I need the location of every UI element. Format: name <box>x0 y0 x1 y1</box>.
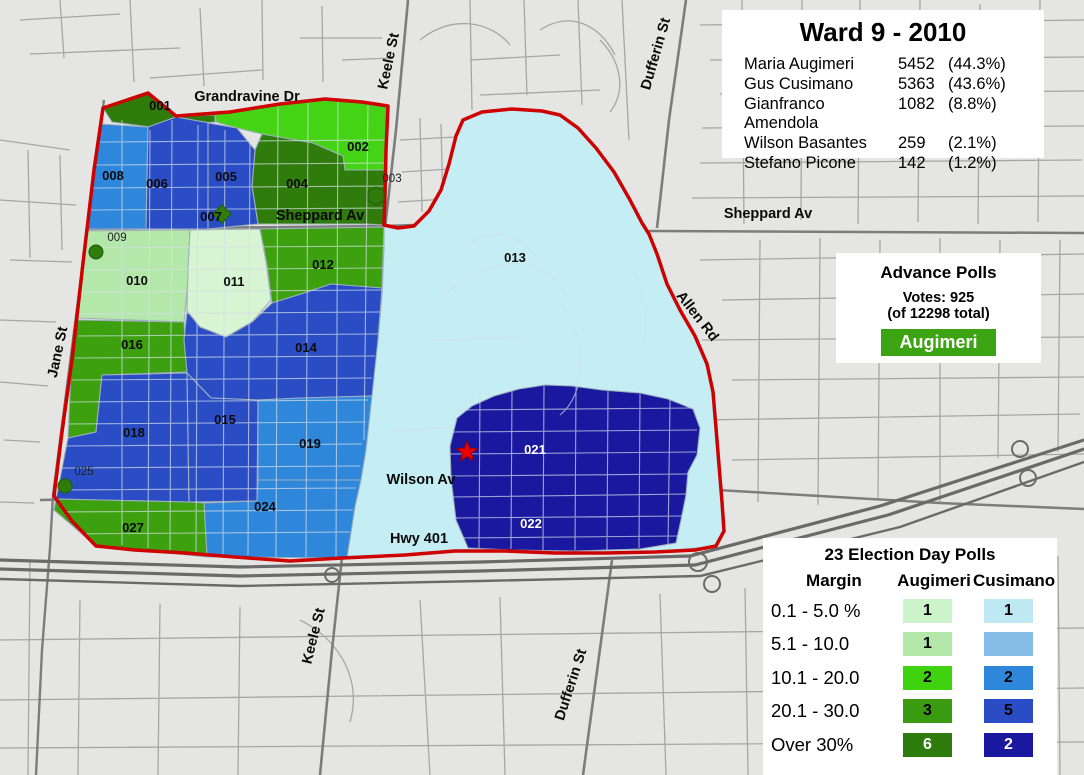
poll-label-018: 018 <box>123 425 145 440</box>
advance-polls-votes: Votes: 925 <box>836 290 1041 306</box>
poll-label-012: 012 <box>312 257 334 272</box>
legend-margin-label: Over 30% <box>771 734 903 756</box>
legend-cusimano-header: Cusimano <box>971 571 1057 591</box>
poll-label-010: 010 <box>126 273 148 288</box>
legend-swatch-cusimano: 2 <box>984 733 1033 757</box>
poll-label-027: 027 <box>122 520 144 535</box>
advance-polls-title: Advance Polls <box>836 263 1041 283</box>
results-panel-title: Ward 9 - 2010 <box>722 10 1044 48</box>
legend-margin-label: 20.1 - 30.0 <box>771 700 903 722</box>
legend-row: 5.1 - 10.0 1 <box>763 628 1057 662</box>
advance-winner-badge: Augimeri <box>881 329 995 356</box>
candidate-pct: (44.3%) <box>948 55 1036 75</box>
legend-margin-label: 10.1 - 20.0 <box>771 667 903 689</box>
poll-label-004: 004 <box>286 176 308 191</box>
poll-label-021: 021 <box>524 442 546 457</box>
candidate-pct: (8.8%) <box>948 95 1036 135</box>
poll-dot-025 <box>58 479 72 493</box>
poll-label-001: 001 <box>149 98 171 113</box>
results-panel: Ward 9 - 2010 Maria Augimeri 5452 (44.3%… <box>722 10 1044 158</box>
candidate-pct: (43.6%) <box>948 75 1036 95</box>
candidate-name: Stefano Picone <box>744 154 898 174</box>
legend-swatch-augimeri: 1 <box>903 632 952 656</box>
poll-label-006: 006 <box>146 176 168 191</box>
poll-label-008: 008 <box>102 168 124 183</box>
candidate-pct: (1.2%) <box>948 154 1036 174</box>
legend-rows: 0.1 - 5.0 % 1 1 5.1 - 10.0 1 10.1 - 20.0… <box>763 594 1057 762</box>
poll-label-003: 003 <box>382 173 401 185</box>
sheppard-av-label-east: Sheppard Av <box>724 206 812 222</box>
legend-margin-label: 0.1 - 5.0 % <box>771 600 903 622</box>
legend-swatch-augimeri: 3 <box>903 699 952 723</box>
legend-row: Over 30% 6 2 <box>763 728 1057 762</box>
poll-label-022: 022 <box>520 516 542 531</box>
hwy-401-label: Hwy 401 <box>390 531 448 547</box>
legend-swatch-cusimano: 5 <box>984 699 1033 723</box>
candidate-name: Wilson Basantes <box>744 134 898 154</box>
poll-label-015: 015 <box>214 412 236 427</box>
poll-label-014: 014 <box>295 340 317 355</box>
legend-augimeri-header: Augimeri <box>897 571 971 591</box>
poll-label-019: 019 <box>299 436 321 451</box>
poll-label-013: 013 <box>504 250 526 265</box>
poll-label-007: 007 <box>200 209 222 224</box>
poll-dot-009 <box>89 245 103 259</box>
legend-swatch-cusimano: 2 <box>984 666 1033 690</box>
legend-row: 10.1 - 20.0 2 2 <box>763 661 1057 695</box>
candidate-votes: 5452 <box>898 55 948 75</box>
sheppard-av-label-west: Sheppard Av <box>276 208 364 224</box>
candidate-name: Maria Augimeri <box>744 55 898 75</box>
candidate-votes: 5363 <box>898 75 948 95</box>
legend-swatch-cusimano: 1 <box>984 599 1033 623</box>
legend-swatch-cusimano <box>984 632 1033 656</box>
candidate-results-list: Maria Augimeri 5452 (44.3%) Gus Cusimano… <box>722 48 1044 174</box>
legend-header-row: Margin Augimeri Cusimano <box>763 571 1057 591</box>
advance-polls-panel: Advance Polls Votes: 925 (of 12298 total… <box>836 253 1041 363</box>
poll-label-024: 024 <box>254 499 276 514</box>
candidate-row: Maria Augimeri 5452 (44.3%) <box>744 55 1036 75</box>
candidate-votes: 259 <box>898 134 948 154</box>
legend-swatch-augimeri: 1 <box>903 599 952 623</box>
legend-row: 0.1 - 5.0 % 1 1 <box>763 594 1057 628</box>
candidate-row: Wilson Basantes 259 (2.1%) <box>744 134 1036 154</box>
candidate-name: Gianfranco Amendola <box>744 95 898 135</box>
advance-polls-total: (of 12298 total) <box>836 306 1041 322</box>
poll-dot-003 <box>368 187 384 205</box>
candidate-row: Stefano Picone 142 (1.2%) <box>744 154 1036 174</box>
grandravine-dr-label: Grandravine Dr <box>194 89 300 105</box>
poll-label-002: 002 <box>347 139 369 154</box>
ward9-election-map-page: Grandravine Dr Keele St Keele St Dufferi… <box>0 0 1084 775</box>
poll-label-009: 009 <box>107 232 126 244</box>
legend-title: 23 Election Day Polls <box>763 545 1057 565</box>
legend-margin-label: 5.1 - 10.0 <box>771 633 903 655</box>
legend-row: 20.1 - 30.0 3 5 <box>763 695 1057 729</box>
candidate-pct: (2.1%) <box>948 134 1036 154</box>
poll-label-011: 011 <box>224 274 245 289</box>
legend-panel: 23 Election Day Polls Margin Augimeri Cu… <box>763 538 1057 775</box>
candidate-votes: 142 <box>898 154 948 174</box>
candidate-row: Gus Cusimano 5363 (43.6%) <box>744 75 1036 95</box>
candidate-votes: 1082 <box>898 95 948 135</box>
wilson-av-label: Wilson Av <box>387 472 456 488</box>
legend-swatch-augimeri: 6 <box>903 733 952 757</box>
legend-swatch-augimeri: 2 <box>903 666 952 690</box>
candidate-row: Gianfranco Amendola 1082 (8.8%) <box>744 95 1036 135</box>
poll-label-025: 025 <box>74 466 93 478</box>
poll-label-016: 016 <box>121 337 143 352</box>
poll-label-005: 005 <box>215 169 237 184</box>
legend-margin-header: Margin <box>771 571 897 591</box>
candidate-name: Gus Cusimano <box>744 75 898 95</box>
